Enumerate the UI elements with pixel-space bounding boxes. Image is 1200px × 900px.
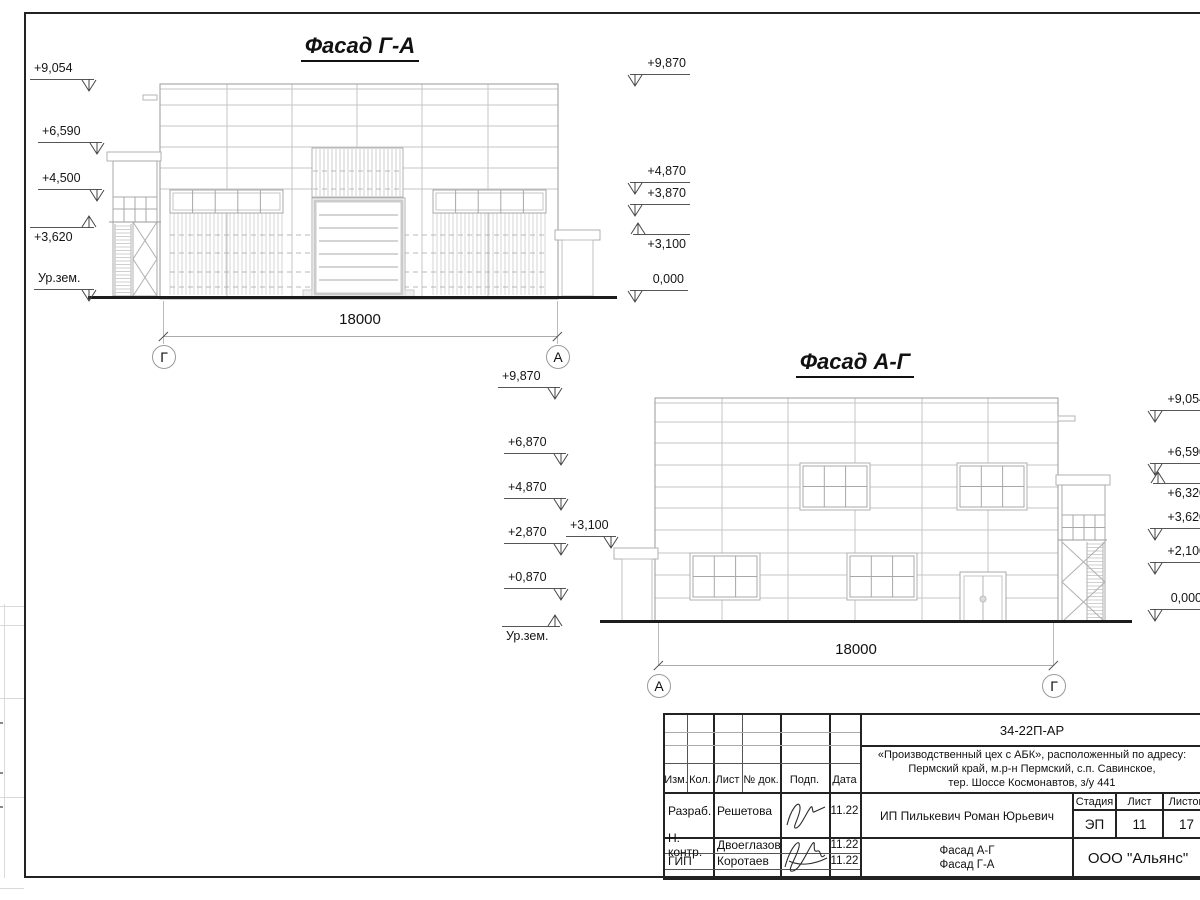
title-block: Изм. Кол. Лист № док. Подп. Дата Разраб.… (663, 713, 1200, 880)
tb-col-doc: № док. (742, 767, 780, 792)
elevation-mark: +3,620 (30, 227, 94, 245)
frame-top (24, 12, 1200, 14)
tb-sheet-title: Фасад Г-А (862, 857, 1072, 872)
dimension-value: 18000 (816, 641, 896, 658)
margin-line (0, 606, 24, 607)
tb-project-line: Пермский край, м.р-н Пермский, с.п. Сави… (862, 762, 1200, 776)
tb-company: ООО "Альянс" (1074, 839, 1200, 878)
elevation-mark: +6,320 (1153, 483, 1200, 501)
elevation-mark: Ур.зем. (502, 626, 560, 644)
elevation-mark: +9,054 (1150, 392, 1200, 411)
axis-bubble: А (647, 674, 671, 698)
tb-sheets-value: 17 (1164, 811, 1200, 837)
margin-line (0, 797, 24, 798)
tb-col-podp: Подп. (780, 767, 829, 792)
tb-client: ИП Пилькевич Роман Юрьевич (862, 794, 1072, 837)
elevation-mark: Ур.зем. (34, 271, 94, 290)
tb-col-data: Дата (829, 767, 860, 792)
elevation-mark: +6,870 (504, 435, 566, 454)
signature (779, 833, 831, 877)
tb-name: Решетова (717, 799, 779, 823)
elevation-mark: +9,870 (630, 56, 690, 75)
tb-role: Н. контр. (668, 837, 716, 853)
tb-line (665, 745, 860, 746)
elevation-mark: 0,000 (1150, 591, 1200, 610)
tb-sheet-title: Фасад А-Г (862, 843, 1072, 858)
tb-line (665, 763, 860, 764)
tb-role: Разраб. (668, 799, 713, 823)
tb-name: Коротаев (717, 853, 781, 869)
tb-line (665, 732, 860, 733)
tb-date: 11.22 (829, 837, 860, 853)
tb-col-izm: Изм. (665, 767, 687, 792)
elevation-mark: +6,590 (38, 124, 102, 143)
frame-left (24, 12, 26, 878)
facade-ga-title: Фасад Г-А (285, 33, 435, 59)
tb-line (860, 745, 1200, 747)
elevation-mark: +2,870 (504, 525, 566, 544)
elevation-mark: +4,500 (38, 171, 102, 190)
elevation-mark: +4,870 (504, 480, 566, 499)
facade-ag-drawing (598, 390, 1143, 630)
tb-doc-number: 34-22П-АР (862, 715, 1200, 745)
axis-bubble: А (546, 345, 570, 369)
dimension-line (658, 665, 1053, 666)
elevation-mark: +0,870 (504, 570, 566, 589)
tb-col-kol: Кол. (687, 767, 713, 792)
tb-col-list: Лист (713, 767, 742, 792)
tb-date: 11.22 (829, 853, 860, 869)
tb-sheet-value: 11 (1117, 811, 1162, 837)
elevation-mark: +3,870 (630, 186, 690, 205)
tb-sheet-label: Лист (1117, 794, 1162, 809)
elevation-mark: +3,620 (1150, 510, 1200, 529)
elevation-mark: +6,590 (1150, 445, 1200, 464)
axis-bubble: Г (152, 345, 176, 369)
tb-name: Двоеглазов (717, 837, 781, 853)
margin-mark (0, 722, 3, 724)
tb-stage-value: ЭП (1074, 811, 1115, 837)
tb-sheets-label: Листов (1164, 794, 1200, 809)
tb-date: 11.22 (829, 799, 860, 823)
elevation-mark: +9,870 (498, 369, 560, 388)
elevation-mark: 0,000 (630, 272, 688, 291)
signature (783, 795, 829, 835)
extension-line (1053, 623, 1054, 665)
tb-project-line: тер. Шоссе Космонавтов, з/у 441 (862, 776, 1200, 790)
tb-project-line: «Производственный цех с АБК», расположен… (862, 748, 1200, 762)
margin-mark (0, 806, 3, 808)
margin-line (0, 888, 24, 889)
margin-mark (0, 772, 3, 774)
elevation-mark: +4,870 (630, 164, 690, 183)
tb-role: ГИП (668, 853, 716, 869)
elevation-mark: +2,100 (1150, 544, 1200, 563)
elevation-mark: +3,100 (633, 234, 690, 252)
dimension-line (163, 336, 557, 337)
facade-ga-drawing (85, 78, 630, 318)
dimension-value: 18000 (320, 311, 400, 328)
elevation-mark: +3,100 (566, 518, 616, 537)
tb-stage-label: Стадия (1074, 794, 1115, 809)
facade-ag-title: Фасад А-Г (780, 349, 930, 375)
margin-line (4, 604, 5, 878)
axis-bubble: Г (1042, 674, 1066, 698)
extension-line (658, 623, 659, 665)
margin-line (0, 625, 24, 626)
elevation-mark: +9,054 (30, 61, 94, 80)
margin-line (0, 698, 24, 699)
drawing-sheet: Фасад Г-А (0, 0, 1200, 900)
